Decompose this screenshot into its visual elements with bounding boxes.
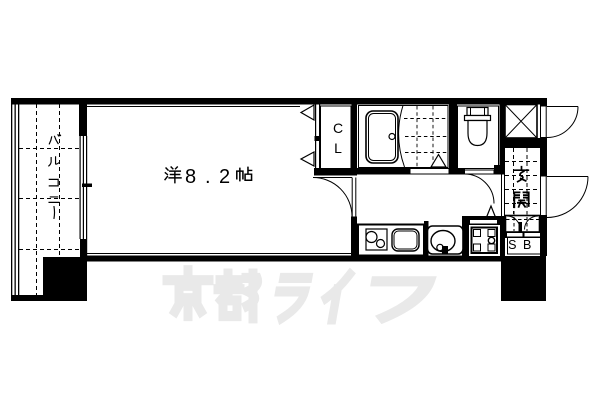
svg-text:SB: SB — [508, 238, 538, 252]
svg-text:2: 2 — [219, 166, 230, 188]
svg-text:.: . — [205, 166, 211, 188]
svg-text:C: C — [333, 120, 343, 136]
svg-text:L: L — [334, 140, 342, 156]
svg-text:8: 8 — [185, 166, 196, 188]
